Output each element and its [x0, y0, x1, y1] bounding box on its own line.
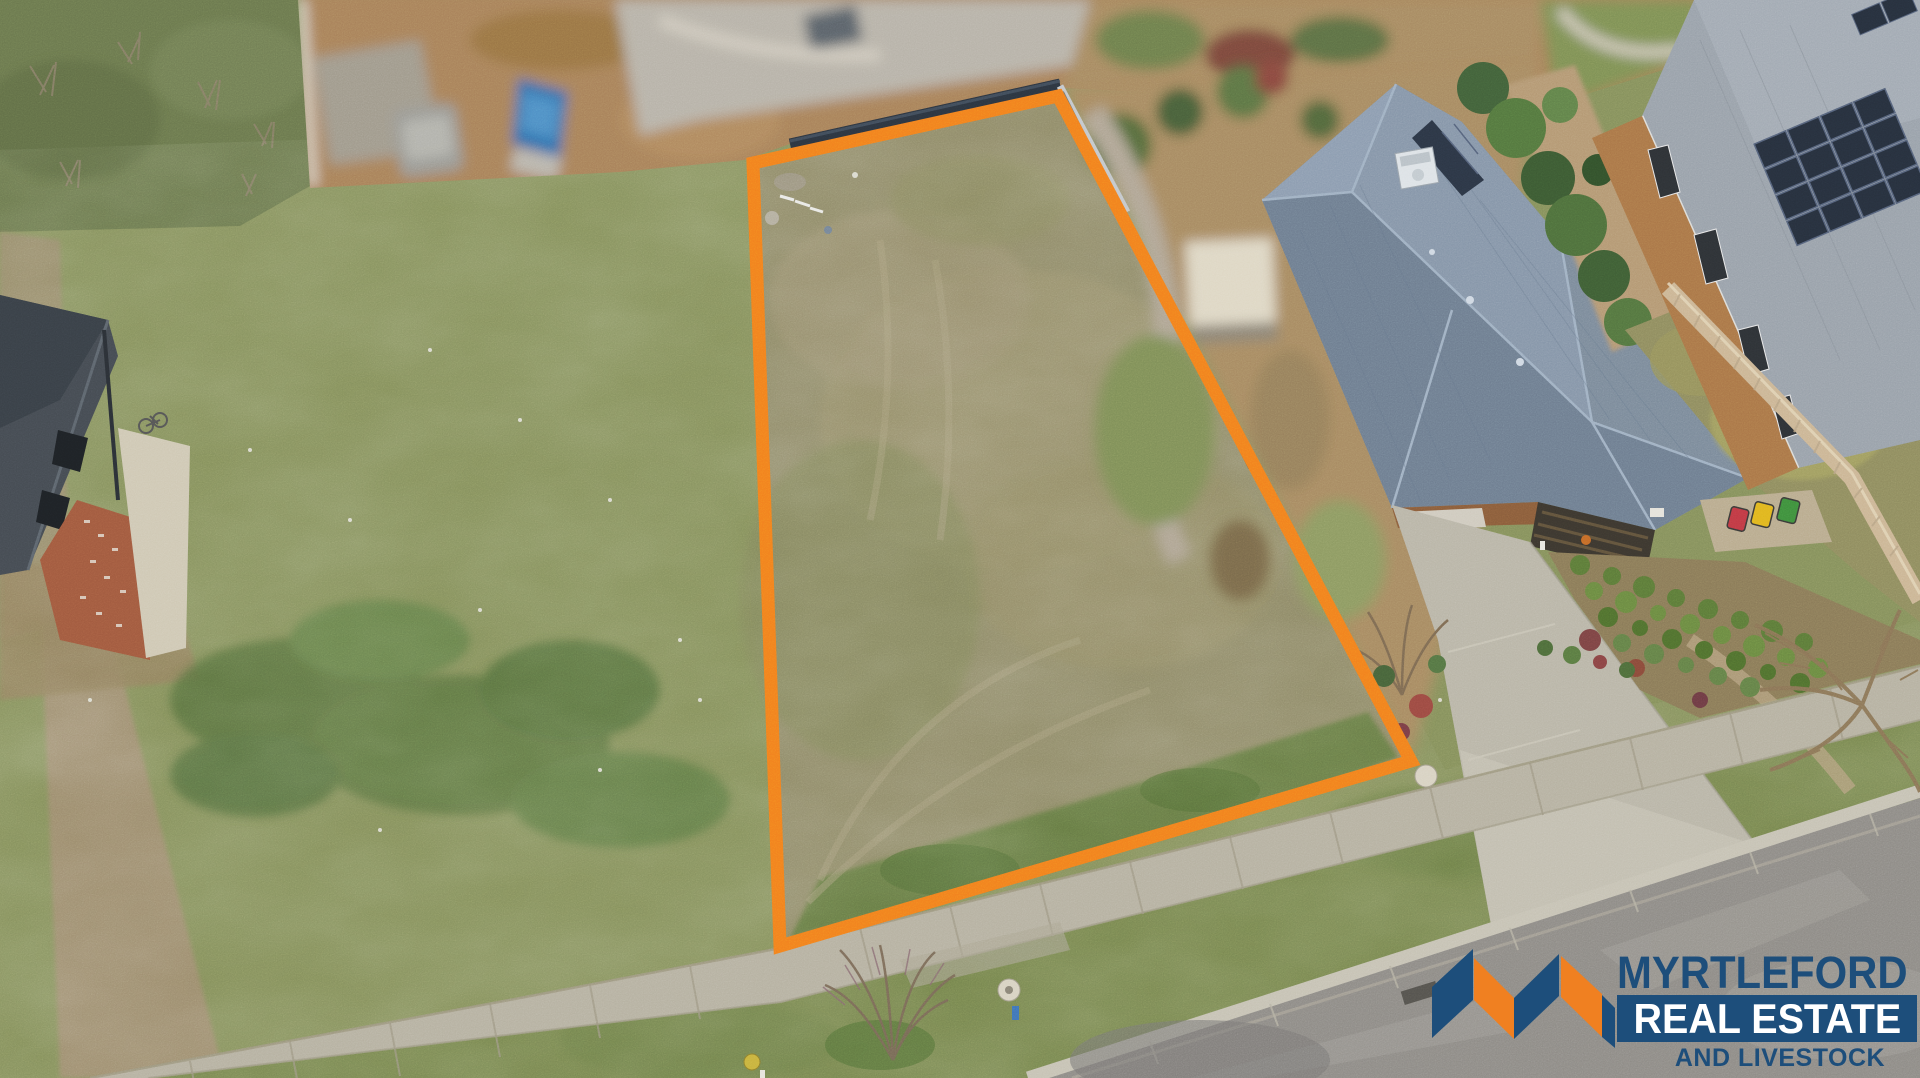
m-stroke-orange-2: [1561, 956, 1602, 1037]
brand-name: MYRTLEFORD: [1617, 951, 1896, 995]
brand-realestate-label: REAL ESTATE: [1633, 995, 1901, 1043]
m-stroke-navy-2: [1514, 954, 1559, 1039]
brand-realestate-band: REAL ESTATE: [1617, 995, 1917, 1042]
m-stroke-orange-1: [1474, 958, 1514, 1039]
watermark-logo: MYRTLEFORD REAL ESTATE AND LIVESTOCK: [1420, 935, 1920, 1078]
photo-scene: [0, 0, 1920, 1078]
aerial-drone-photo: MYRTLEFORD REAL ESTATE AND LIVESTOCK: [0, 0, 1920, 1078]
brand-tagline: AND LIVESTOCK: [1617, 1044, 1917, 1073]
brand-m-icon: [1420, 935, 1620, 1060]
m-stroke-navy-3: [1602, 995, 1615, 1048]
photo-grain: [0, 0, 1920, 1078]
m-stroke-navy-1: [1432, 949, 1473, 1038]
